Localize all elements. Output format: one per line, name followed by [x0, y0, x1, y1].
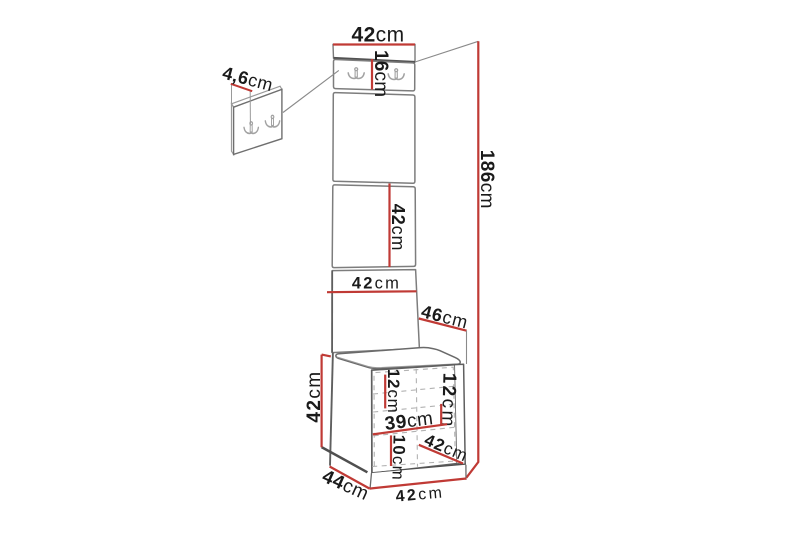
svg-text:42cm: 42cm: [304, 371, 325, 423]
svg-text:42cm: 42cm: [352, 274, 401, 292]
svg-text:186cm: 186cm: [476, 150, 497, 209]
svg-text:12cm: 12cm: [384, 369, 403, 414]
svg-text:10cm: 10cm: [388, 434, 408, 481]
svg-text:12cm: 12cm: [437, 372, 459, 429]
svg-text:16cm: 16cm: [370, 50, 391, 97]
svg-text:42cm: 42cm: [388, 204, 408, 252]
svg-text:42cm: 42cm: [352, 24, 405, 47]
